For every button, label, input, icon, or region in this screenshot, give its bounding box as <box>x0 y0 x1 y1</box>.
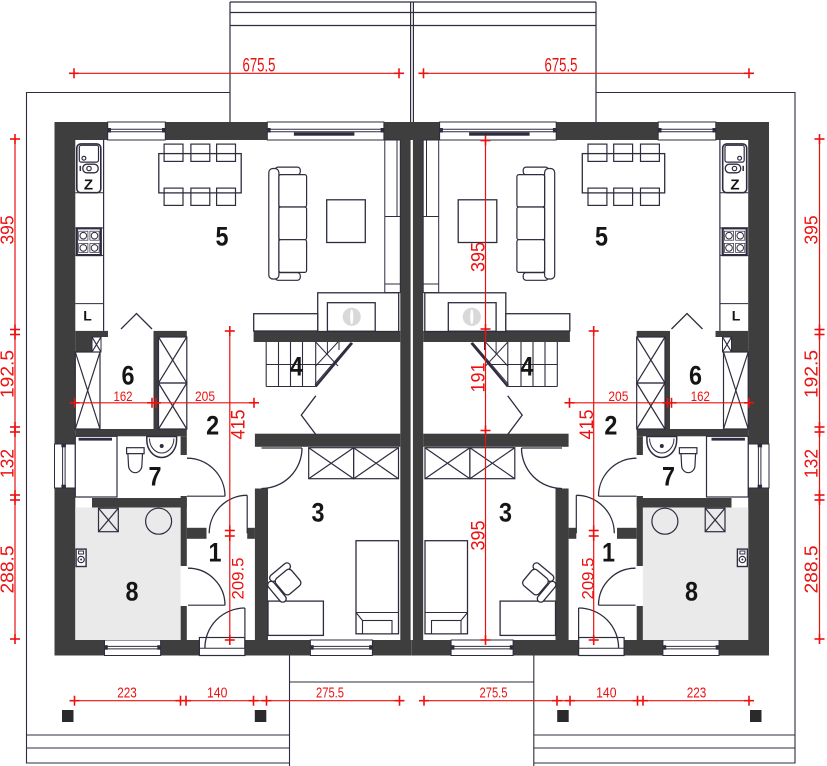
svg-text:5: 5 <box>216 222 229 252</box>
svg-text:6: 6 <box>689 361 702 391</box>
svg-text:8: 8 <box>126 577 139 607</box>
svg-text:223: 223 <box>117 685 137 701</box>
svg-text:132: 132 <box>0 449 18 478</box>
svg-text:140: 140 <box>207 685 227 701</box>
svg-text:L: L <box>83 308 92 324</box>
svg-text:223: 223 <box>687 685 707 701</box>
svg-text:275.5: 275.5 <box>480 685 508 701</box>
svg-text:2: 2 <box>206 411 219 441</box>
svg-text:4: 4 <box>521 352 534 382</box>
svg-text:395: 395 <box>801 216 822 245</box>
svg-text:192.5: 192.5 <box>801 350 822 398</box>
svg-text:4: 4 <box>290 352 303 382</box>
svg-text:288.5: 288.5 <box>801 546 822 594</box>
svg-text:1: 1 <box>209 538 222 568</box>
svg-text:7: 7 <box>662 462 675 492</box>
svg-text:415: 415 <box>576 409 598 439</box>
svg-text:6: 6 <box>122 361 135 391</box>
svg-text:191: 191 <box>467 363 489 393</box>
svg-text:205: 205 <box>195 388 215 404</box>
svg-text:415: 415 <box>227 409 249 439</box>
svg-text:132: 132 <box>801 449 822 478</box>
svg-text:Z: Z <box>730 177 739 194</box>
svg-text:395: 395 <box>0 216 18 245</box>
svg-text:8: 8 <box>685 577 698 607</box>
svg-text:395: 395 <box>467 520 489 550</box>
svg-text:192.5: 192.5 <box>0 350 18 398</box>
svg-text:5: 5 <box>595 222 608 252</box>
svg-text:275.5: 275.5 <box>316 685 344 701</box>
svg-text:3: 3 <box>312 498 325 528</box>
svg-text:395: 395 <box>467 242 489 272</box>
svg-text:675.5: 675.5 <box>545 56 578 77</box>
svg-text:288.5: 288.5 <box>0 546 18 594</box>
svg-text:209.5: 209.5 <box>228 558 247 600</box>
svg-text:2: 2 <box>604 411 617 441</box>
svg-text:3: 3 <box>499 498 512 528</box>
svg-text:675.5: 675.5 <box>243 56 276 77</box>
svg-text:Z: Z <box>84 177 93 194</box>
svg-text:205: 205 <box>608 388 628 404</box>
svg-text:7: 7 <box>149 462 162 492</box>
svg-text:209.5: 209.5 <box>578 558 597 600</box>
svg-text:140: 140 <box>596 685 616 701</box>
svg-text:L: L <box>732 308 741 324</box>
svg-text:1: 1 <box>602 538 615 568</box>
